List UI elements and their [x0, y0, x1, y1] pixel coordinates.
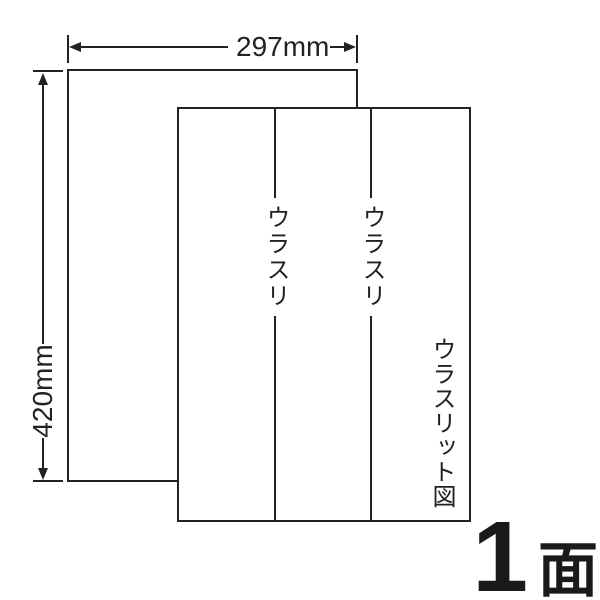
- dimension-line: [42, 84, 44, 344]
- dimension-tick: [33, 70, 63, 72]
- back-view-panel: ウラスリ ウラスリ ウラスリット図: [177, 107, 471, 522]
- dimension-tick: [33, 480, 63, 482]
- dimension-line: [42, 438, 44, 470]
- width-dimension-label: 297mm: [236, 33, 329, 61]
- diagram-title: ウラスリット図: [429, 337, 453, 509]
- slit-line-segment: [370, 316, 372, 520]
- label-sheet-diagram: 297mm 420mm ウラスリ ウラスリ ウラスリット図 1 面: [0, 0, 600, 600]
- count-unit: 面: [538, 544, 598, 598]
- height-dimension-label: 420mm: [29, 344, 57, 437]
- slit-line-segment: [274, 316, 276, 520]
- slit-label: ウラスリ: [263, 198, 287, 316]
- arrow-down-icon: [38, 468, 48, 480]
- arrow-right-icon: [344, 42, 356, 52]
- slit-line-segment: [370, 109, 372, 198]
- slit-line-right: ウラスリ: [357, 109, 385, 520]
- slit-line-left: ウラスリ: [261, 109, 289, 520]
- slit-label: ウラスリ: [359, 198, 383, 316]
- count-number: 1: [472, 520, 528, 594]
- slit-line-segment: [274, 109, 276, 198]
- dimension-line: [80, 46, 228, 48]
- dimension-tick: [356, 35, 358, 63]
- sheet-count: 1 面: [472, 520, 598, 598]
